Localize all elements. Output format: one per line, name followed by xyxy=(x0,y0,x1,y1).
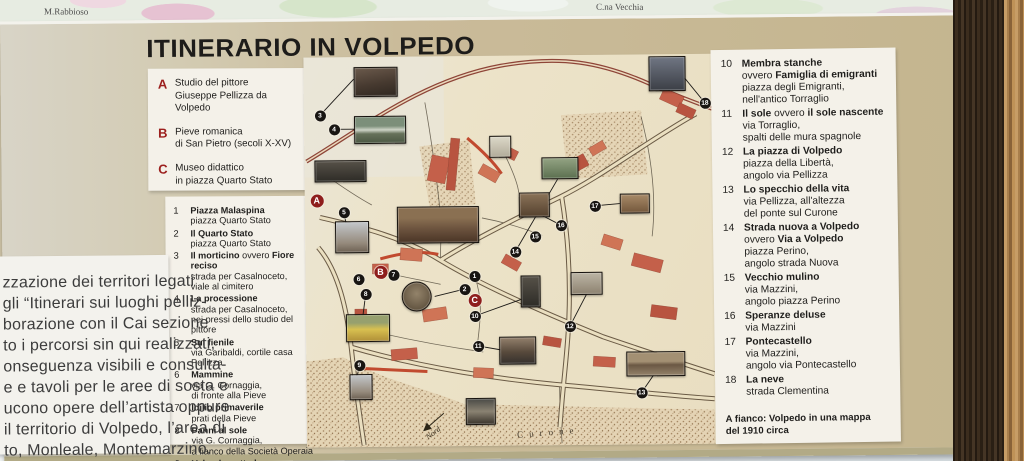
map-letter-marker: C xyxy=(468,293,481,306)
list-item-number: 11 xyxy=(721,109,743,145)
list-item-text: Membra stancheovvero Famiglia di emigran… xyxy=(742,57,878,107)
photo-thumbnail xyxy=(466,398,496,425)
list-item: 16Speranze delusevia Mazzini xyxy=(724,309,895,335)
photo-thumbnail xyxy=(519,192,550,217)
map-number-marker: 2 xyxy=(459,284,470,295)
photo-thumbnail xyxy=(314,160,366,182)
photo-thumbnail xyxy=(626,351,685,377)
map-number-marker: 9 xyxy=(354,360,365,371)
map-number-marker: 12 xyxy=(564,321,575,332)
map-number-marker: 16 xyxy=(555,220,566,231)
photo-thumbnail xyxy=(397,206,479,244)
list-item-number: 14 xyxy=(723,223,745,271)
wooden-post-edge xyxy=(1004,0,1024,461)
photo-thumbnail xyxy=(354,116,406,144)
list-item: 17Pontecastellovia Mazzini,angolo via Po… xyxy=(725,335,896,373)
list-item-text: Il sole ovvero il sole nascentevia Torra… xyxy=(742,107,884,145)
list-item: 2Il Quarto Statopiazza Quarto Stato xyxy=(173,227,317,248)
list-item-text: La processionestrada per Casalnoceto,nei… xyxy=(191,293,318,335)
map-number-marker: 15 xyxy=(530,231,541,242)
topo-map-label: M.Rabbioso xyxy=(44,6,88,16)
photo-thumbnail xyxy=(349,374,372,400)
list-item-text: Vecchio mulinovia Mazzini,angolo piazza … xyxy=(745,271,841,308)
list-item: 11Il sole ovvero il sole nascentevia Tor… xyxy=(721,107,892,145)
legend-letter: A xyxy=(158,78,175,116)
list-item: 13Lo specchio della vitavia Pellizza, al… xyxy=(722,183,893,221)
legend-letter: B xyxy=(158,126,175,151)
list-item-number: 18 xyxy=(725,375,746,399)
photo-thumbnail xyxy=(353,67,397,97)
site-list-10-18: A fianco: Volpedo in una mappadel 1910 c… xyxy=(710,48,900,445)
map-number-marker: 1 xyxy=(469,270,480,281)
map-number-marker: 11 xyxy=(473,340,484,351)
map-letter-marker: A xyxy=(310,194,323,207)
topo-map-label: C.na Vecchia xyxy=(596,2,643,12)
list-item-text: Il Quarto Statopiazza Quarto Stato xyxy=(190,228,270,249)
list-item-number: 17 xyxy=(725,337,747,373)
list-item: 9Volpedo sotto la nevevia G. Cornaggia,c… xyxy=(175,458,319,461)
adjacent-text-panel: zzazione dei territori legatigli “Itiner… xyxy=(0,255,170,455)
map-number-marker: 3 xyxy=(314,110,325,121)
paragraph-line-fragment: il territorio di Volpedo, l’area di xyxy=(4,418,166,441)
list-item: 10Membra stancheovvero Famiglia di emigr… xyxy=(721,57,893,107)
river-label: Curone xyxy=(517,425,580,440)
list-item-text: Pontecastellovia Mazzini,angolo via Pont… xyxy=(745,335,856,373)
photo-thumbnail xyxy=(346,314,390,342)
legend-text: Pieve romanicadi San Pietro (secoli X-XV… xyxy=(175,126,291,152)
photo-thumbnail xyxy=(335,221,369,253)
north-label: Nord xyxy=(424,424,442,441)
list-item: 12La piazza di Volpedopiazza della Liber… xyxy=(722,145,893,183)
photo-thumbnail xyxy=(620,193,650,213)
list-item: 15Vecchio mulinovia Mazzini,angolo piazz… xyxy=(724,271,895,309)
photo-thumbnail xyxy=(570,272,602,295)
list-item-number: 13 xyxy=(722,185,744,221)
legend-text: Museo didatticoin piazza Quarto Stato xyxy=(175,162,272,188)
map-number-marker: 10 xyxy=(469,310,480,321)
map-number-marker: 4 xyxy=(329,124,340,135)
list-item-text: Strada nuova a Volpedoovvero Via a Volpe… xyxy=(744,221,860,271)
legend-entry: CMuseo didatticoin piazza Quarto Stato xyxy=(158,162,302,188)
list-item: 3Il morticino ovvero Fiore recisostrada … xyxy=(174,250,318,292)
map-number-marker: 14 xyxy=(510,246,521,257)
list-item-text: Il morticino ovvero Fiore recisostrada p… xyxy=(191,250,318,292)
list-item-number: 15 xyxy=(724,273,746,309)
list-item-text: Piazza Malaspinapiazza Quarto Stato xyxy=(190,205,270,226)
map-number-marker: 17 xyxy=(589,200,600,211)
itinerary-sign-panel: ITINERARIO IN VOLPEDO AStudio del pittor… xyxy=(0,12,998,461)
paragraph-line-fragment: to, Monleale, Montemarzino. xyxy=(4,439,166,461)
photo-of-information-sign: M.Rabbioso C.na Vecchia ITINERARIO IN VO… xyxy=(0,0,1024,461)
photo-thumbnail xyxy=(402,281,432,311)
list-item-text: Lo specchio della vitavia Pellizza, all'… xyxy=(743,183,849,220)
list-item-number: 12 xyxy=(722,147,744,183)
list-item: 18La nevestrada Clementina xyxy=(725,373,896,399)
map-number-marker: 5 xyxy=(338,207,349,218)
list-item-number: 2 xyxy=(173,228,190,249)
paragraph-line-fragment: zzazione dei territori legati xyxy=(2,271,164,294)
photo-thumbnail xyxy=(648,56,685,91)
historic-town-map: Curone Nord 345678912101112131415161718A… xyxy=(303,54,716,448)
list-item-text: La piazza di Volpedopiazza della Libertà… xyxy=(743,145,843,182)
paragraph-line-fragment: to i percorsi sin qui realizzati, xyxy=(3,334,165,357)
paragraph-line-fragment: ucono opere dell’artista oppure xyxy=(4,397,166,420)
photo-thumbnail xyxy=(489,136,511,158)
paragraph-line-fragment: onseguenza visibili e consulta- xyxy=(3,355,165,378)
map-marker-overlay: Curone Nord 345678912101112131415161718A… xyxy=(303,54,716,448)
list-item-number: 10 xyxy=(721,59,743,107)
list-item-text: Speranze delusevia Mazzini xyxy=(745,310,826,335)
map-number-marker: 13 xyxy=(636,387,647,398)
map-number-marker: 8 xyxy=(360,288,371,299)
paragraph-line-fragment: borazione con il Cai sezione xyxy=(3,313,165,336)
paragraph-line-fragment: gli “Itinerari sui luoghi pelliz- xyxy=(3,292,165,315)
photo-thumbnail xyxy=(541,157,578,179)
map-letter-marker: B xyxy=(374,265,387,278)
legend-card: AStudio del pittoreGiuseppe Pellizza da … xyxy=(148,68,309,191)
paragraph-line-fragment: e e tavoli per le aree di sosta e xyxy=(3,376,165,399)
map-caption-note: A fianco: Volpedo in una mappadel 1910 c… xyxy=(726,412,871,437)
legend-entry: BPieve romanicadi San Pietro (secoli X-X… xyxy=(158,126,302,152)
map-number-marker: 18 xyxy=(699,97,710,108)
photo-thumbnail xyxy=(521,275,541,307)
map-number-marker: 6 xyxy=(353,274,364,285)
map-number-marker: 7 xyxy=(388,269,399,280)
legend-letter: C xyxy=(158,163,175,188)
list-item: 1Piazza Malaspinapiazza Quarto Stato xyxy=(173,205,317,226)
list-item-number: 1 xyxy=(173,205,190,226)
list-item: 14Strada nuova a Volpedoovvero Via a Vol… xyxy=(723,221,895,271)
wooden-post xyxy=(953,0,1004,461)
legend-entry: AStudio del pittoreGiuseppe Pellizza da … xyxy=(158,77,302,115)
photo-thumbnail xyxy=(499,336,536,364)
legend-text: Studio del pittoreGiuseppe Pellizza da V… xyxy=(175,77,302,115)
list-item-text: La nevestrada Clementina xyxy=(746,374,829,399)
list-item-number: 16 xyxy=(724,311,745,335)
